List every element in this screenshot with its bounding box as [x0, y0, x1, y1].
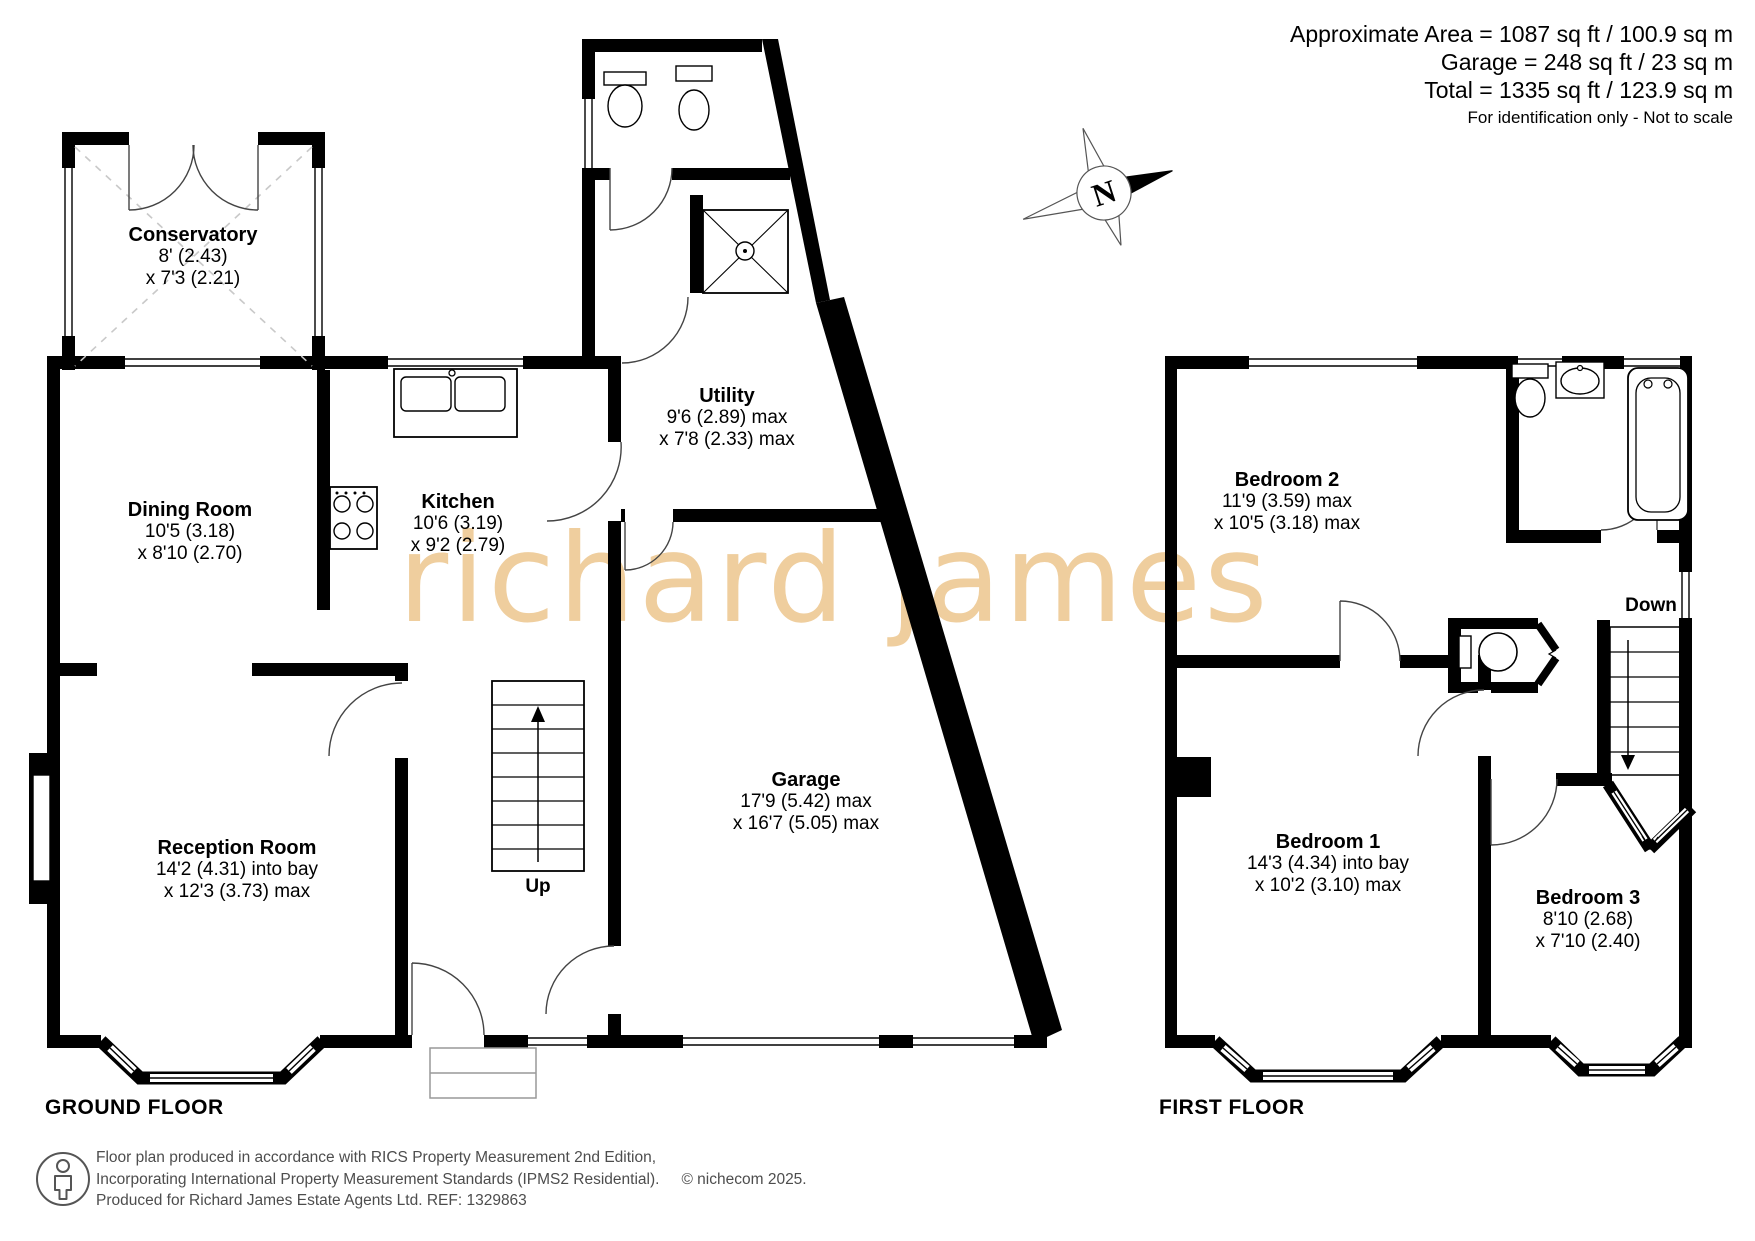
room-label-utility: Utility 9'6 (2.89) max x 7'8 (2.33) max: [659, 385, 795, 451]
footer-line2: Incorporating International Property Mea…: [96, 1171, 659, 1188]
person-icon: [34, 1150, 92, 1208]
room-label-dining-room: Dining Room 10'5 (3.18) x 8'10 (2.70): [128, 499, 252, 565]
approximate-area-line: Approximate Area = 1087 sq ft / 100.9 sq…: [1290, 20, 1733, 48]
footer-copyright: © nichecom 2025.: [681, 1171, 806, 1188]
up-label: Up: [525, 876, 550, 898]
room-label-bedroom3: Bedroom 3 8'10 (2.68) x 7'10 (2.40): [1535, 887, 1640, 953]
total-area-line: Total = 1335 sq ft / 123.9 sq m: [1290, 76, 1733, 104]
labels-layer: Approximate Area = 1087 sq ft / 100.9 sq…: [0, 0, 1755, 1241]
garage-area-line: Garage = 248 sq ft / 23 sq m: [1290, 48, 1733, 76]
footer-line1: Floor plan produced in accordance with R…: [96, 1147, 807, 1169]
ground-floor-title: GROUND FLOOR: [45, 1096, 224, 1120]
room-label-garage: Garage 17'9 (5.42) max x 16'7 (5.05) max: [733, 769, 879, 835]
room-label-bedroom2: Bedroom 2 11'9 (3.59) max x 10'5 (3.18) …: [1214, 469, 1360, 535]
room-label-kitchen: Kitchen 10'6 (3.19) x 9'2 (2.79): [411, 491, 505, 557]
first-floor-title: FIRST FLOOR: [1159, 1096, 1305, 1120]
disclaimer-line: For identification only - Not to scale: [1290, 108, 1733, 128]
room-label-reception-room: Reception Room 14'2 (4.31) into bay x 12…: [156, 837, 318, 903]
area-summary: Approximate Area = 1087 sq ft / 100.9 sq…: [1290, 20, 1733, 128]
room-label-conservatory: Conservatory 8' (2.43) x 7'3 (2.21): [129, 224, 258, 290]
footer-line3: Produced for Richard James Estate Agents…: [96, 1190, 807, 1212]
room-label-bedroom1: Bedroom 1 14'3 (4.34) into bay x 10'2 (3…: [1247, 831, 1409, 897]
footer-disclaimer: Floor plan produced in accordance with R…: [96, 1147, 807, 1212]
down-label: Down: [1625, 595, 1677, 617]
